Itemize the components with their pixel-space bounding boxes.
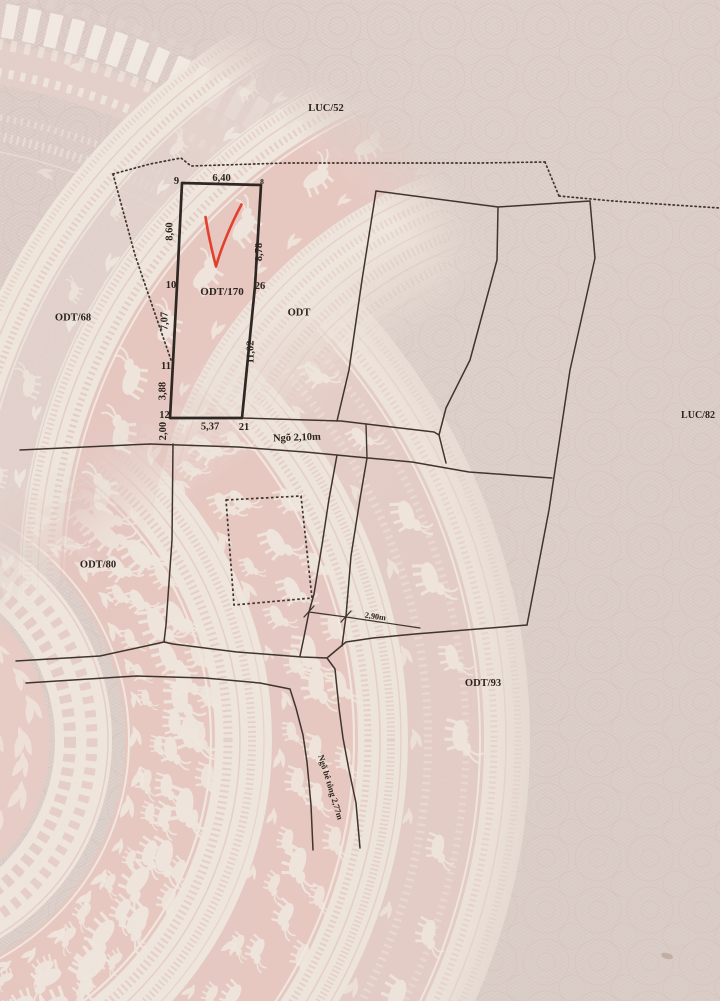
svg-text:12: 12 <box>159 410 170 421</box>
svg-text:21: 21 <box>239 422 250 433</box>
svg-text:LUC/52: LUC/52 <box>308 103 344 114</box>
svg-text:7,07: 7,07 <box>160 312 171 330</box>
svg-text:8,60: 8,60 <box>165 222 176 240</box>
svg-text:10: 10 <box>166 280 177 291</box>
svg-text:ODT/68: ODT/68 <box>55 313 91 324</box>
svg-text:2,00: 2,00 <box>158 422 169 440</box>
svg-text:8,78: 8,78 <box>254 243 265 261</box>
svg-text:ODT/80: ODT/80 <box>80 560 116 571</box>
svg-text:26: 26 <box>255 281 266 292</box>
svg-text:5,37: 5,37 <box>201 422 219 433</box>
svg-text:ODT/93: ODT/93 <box>465 678 501 689</box>
svg-text:6,40: 6,40 <box>212 173 230 184</box>
svg-text:9: 9 <box>174 176 179 187</box>
svg-text:8: 8 <box>260 177 264 186</box>
svg-text:11: 11 <box>161 361 171 372</box>
svg-text:3,88: 3,88 <box>158 382 169 400</box>
svg-text:ODT: ODT <box>288 308 311 319</box>
svg-text:11,02: 11,02 <box>246 340 257 363</box>
svg-text:ODT/170: ODT/170 <box>200 286 244 298</box>
svg-text:LUC/82: LUC/82 <box>681 410 715 421</box>
svg-text:Ngõ 2,10m: Ngõ 2,10m <box>273 432 321 445</box>
